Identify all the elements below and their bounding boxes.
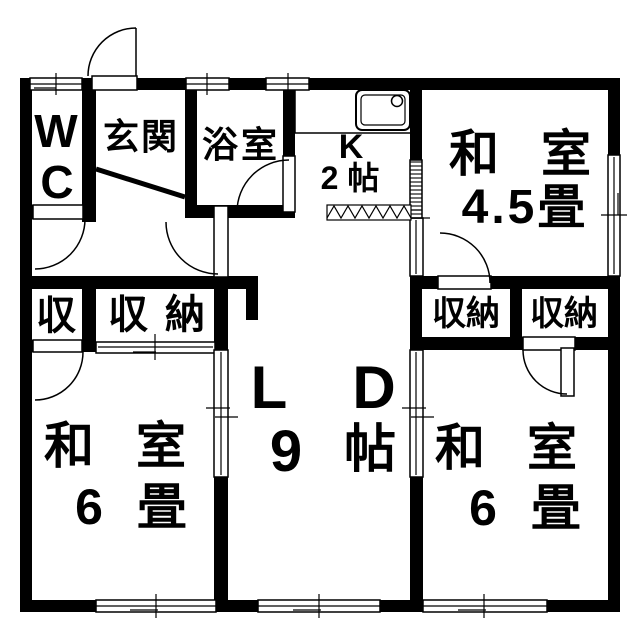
room45-label: 和 室 [449, 129, 605, 179]
kitchen-label: K [339, 130, 364, 164]
room6-left-label: 和 室 [44, 421, 200, 471]
wall-closet-bottom-seg1 [20, 340, 33, 352]
ld-letter-l: L [251, 358, 288, 418]
closet-right-a-door-opening [438, 276, 491, 289]
closet-small-door-leaf [33, 340, 82, 352]
closet-right-a-label: 収納 [432, 297, 500, 331]
closet-left-label: 収 納 [108, 295, 208, 335]
room45-size: 4.5畳 [462, 184, 589, 232]
room6-left-size: 6 畳 [75, 482, 197, 532]
wall-entrance-bath [185, 78, 197, 218]
corridor-ld-door-arc [166, 222, 218, 274]
entrance-label: 玄関 [103, 119, 179, 155]
kitchen-hatched-counter [327, 205, 411, 220]
wall-closet-right-bottom [422, 337, 612, 350]
wc-label-line1: W [34, 108, 77, 154]
bathroom-label: 浴室 [202, 127, 280, 163]
wall-closet-divider-right [510, 289, 522, 337]
entrance-door-arc [88, 28, 136, 76]
wc-door-arc [35, 219, 85, 269]
closet-small-door-arc [35, 352, 83, 400]
wall-ld-right-lower [410, 477, 423, 604]
bathroom-door-leaf [283, 156, 295, 212]
closet-right-b-label: 収納 [530, 297, 598, 331]
ld-size-number: 9 [270, 423, 302, 481]
wall-closet-bottom-seg2 [82, 340, 96, 352]
room6-right-label: 和 室 [435, 423, 591, 473]
entrance-step-line [96, 169, 185, 197]
wc-label-line2: C [40, 159, 73, 205]
kitchen-size: 2 帖 [321, 162, 380, 194]
closet-right-b-door-leaf [561, 348, 574, 396]
closet-small-label: 収 [36, 296, 76, 336]
wall-ld-right-upper [410, 276, 422, 350]
wall-ld-left-lower [214, 477, 228, 604]
sink-icon [356, 90, 410, 130]
floorplan: W C 玄関 浴室 K 2 帖 和 室 4.5畳 L D 9 帖 和 室 6 畳… [0, 0, 640, 640]
wall-bath-bottom [185, 205, 295, 218]
room6-right-size: 6 畳 [469, 483, 591, 533]
fusuma-panel-hatched [410, 160, 422, 218]
corridor-ld-door-leaf [214, 206, 228, 277]
wall-kitchen-room45 [410, 78, 422, 160]
wall-wc-right [82, 78, 96, 222]
ld-size-unit: 帖 [344, 424, 396, 476]
wall-corridor-bottom [20, 276, 258, 289]
wall-pillar-hook [246, 289, 258, 320]
ld-letter-d: D [352, 358, 395, 418]
bathroom-door-arc [237, 160, 289, 212]
entrance-door-opening [92, 76, 137, 90]
